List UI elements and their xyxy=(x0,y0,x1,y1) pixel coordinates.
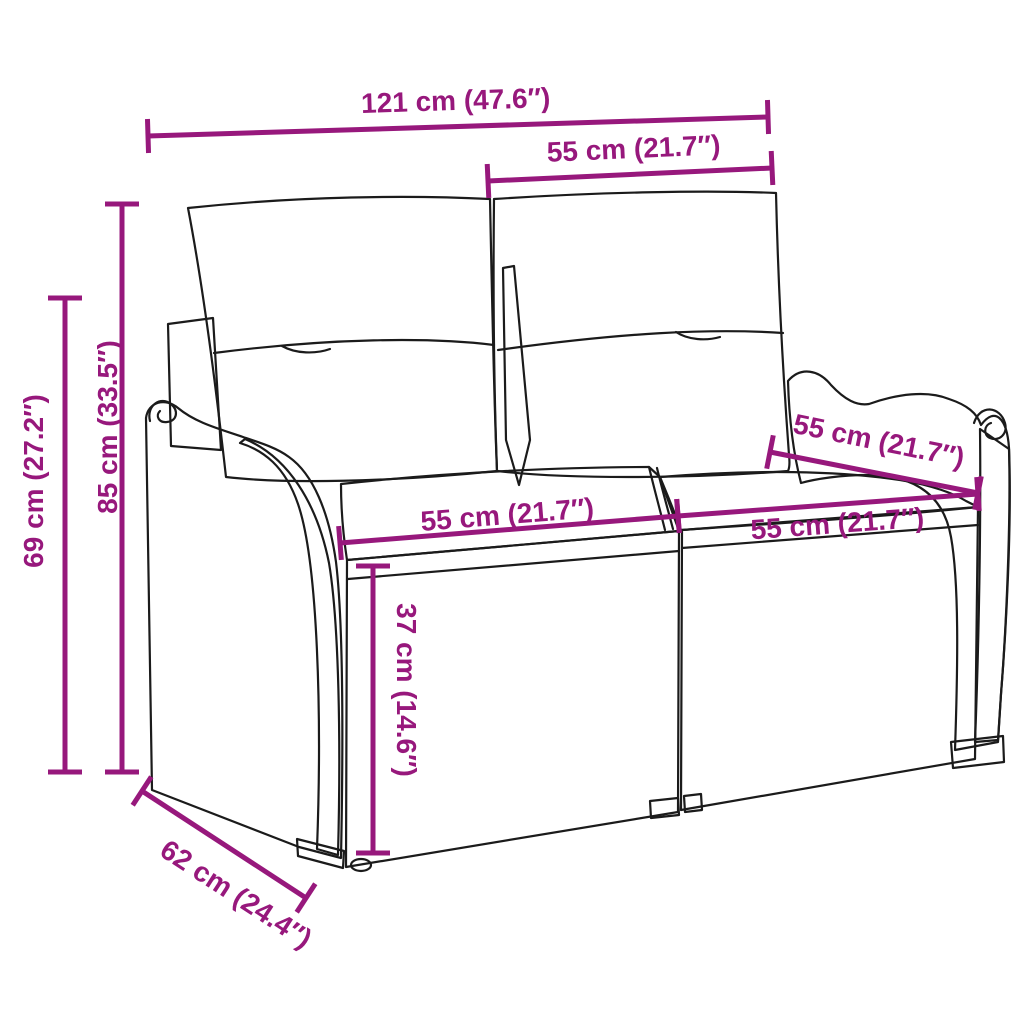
dimension-armrest-height: 69 cm (27.2″) xyxy=(18,298,82,772)
dimension-tick-end xyxy=(767,100,768,134)
product-dimension-diagram: 121 cm (47.6″)55 cm (21.7″)85 cm (33.5″)… xyxy=(0,0,1024,1024)
dimension-tick-start xyxy=(147,119,148,153)
dimension-annotations: 121 cm (47.6″)55 cm (21.7″)85 cm (33.5″)… xyxy=(18,82,981,954)
dimension-label-seat-section-top: 55 cm (21.7″) xyxy=(546,129,721,168)
dimension-seat-height: 37 cm (14.6″) xyxy=(356,566,422,853)
dimension-seat-section-top: 55 cm (21.7″) xyxy=(487,129,773,198)
diagram-canvas: 121 cm (47.6″)55 cm (21.7″)85 cm (33.5″)… xyxy=(0,0,1024,1024)
dimension-tick-start xyxy=(133,777,152,805)
back-cushion-left xyxy=(188,197,497,481)
dimension-seat-width-left: 55 cm (21.7″) xyxy=(339,492,680,560)
dimension-tick-start xyxy=(487,164,489,198)
dimension-tick-start xyxy=(339,526,342,560)
back-panel-strip-middle xyxy=(503,266,530,485)
back-cushion-right xyxy=(494,192,790,477)
dimension-label-overall-height: 85 cm (33.5″) xyxy=(92,340,123,514)
dimension-overall-height: 85 cm (33.5″) xyxy=(92,204,139,772)
dimension-tick-start xyxy=(677,499,679,533)
back-panel-strip-left xyxy=(168,318,221,450)
dimension-tick-end xyxy=(297,884,316,912)
dimension-seat-depth-bottom: 62 cm (24.4″) xyxy=(133,777,318,955)
dimension-label-seat-height: 37 cm (14.6″) xyxy=(391,603,422,777)
armrest-left-scroll-icon xyxy=(149,401,176,422)
dimension-label-armrest-height: 69 cm (27.2″) xyxy=(18,394,49,568)
dimension-label-overall-width: 121 cm (47.6″) xyxy=(361,82,551,119)
dimension-tick-end xyxy=(977,477,979,511)
armrest-left xyxy=(146,401,342,858)
dimension-line xyxy=(488,168,772,181)
dimension-tick-end xyxy=(771,151,773,185)
dimension-tick-start xyxy=(767,435,774,468)
front-panel-right xyxy=(681,507,978,810)
